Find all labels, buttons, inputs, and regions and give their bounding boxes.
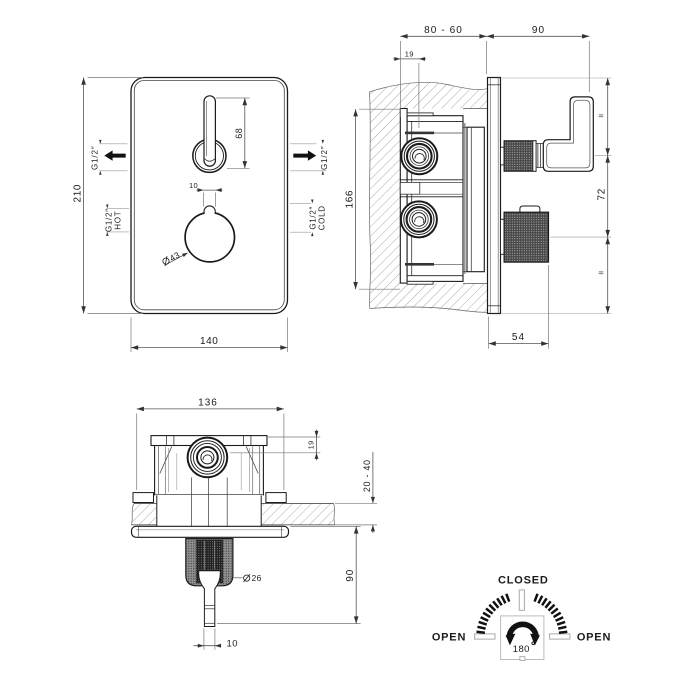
svg-text:90: 90	[532, 25, 545, 36]
svg-text:CLOSED: CLOSED	[498, 574, 549, 586]
svg-text:G1/2″: G1/2″	[90, 145, 99, 170]
svg-text:54: 54	[512, 332, 525, 343]
svg-text:72: 72	[597, 188, 608, 200]
svg-text:180: 180	[513, 644, 530, 655]
svg-text:19: 19	[307, 440, 316, 449]
svg-text:68: 68	[234, 128, 244, 139]
svg-text:OPEN: OPEN	[577, 631, 611, 643]
svg-text:80 - 60: 80 - 60	[424, 25, 463, 36]
svg-text:20 - 40: 20 - 40	[362, 459, 372, 492]
svg-text:26: 26	[252, 573, 262, 583]
svg-text:HOT: HOT	[114, 211, 123, 230]
svg-text:19: 19	[405, 49, 414, 58]
svg-text:10: 10	[189, 181, 198, 190]
svg-text:140: 140	[200, 336, 219, 347]
svg-text:136: 136	[198, 397, 218, 408]
svg-text:OPEN: OPEN	[432, 631, 466, 643]
svg-text:G1/2″: G1/2″	[309, 206, 318, 230]
svg-text:10: 10	[227, 638, 239, 649]
svg-text:90: 90	[345, 569, 356, 582]
svg-text:210: 210	[73, 184, 84, 203]
svg-text:G1/2″: G1/2″	[320, 145, 329, 170]
svg-text:G1/2″: G1/2″	[105, 208, 114, 232]
svg-text:166: 166	[345, 190, 356, 209]
svg-text:COLD: COLD	[318, 205, 327, 230]
